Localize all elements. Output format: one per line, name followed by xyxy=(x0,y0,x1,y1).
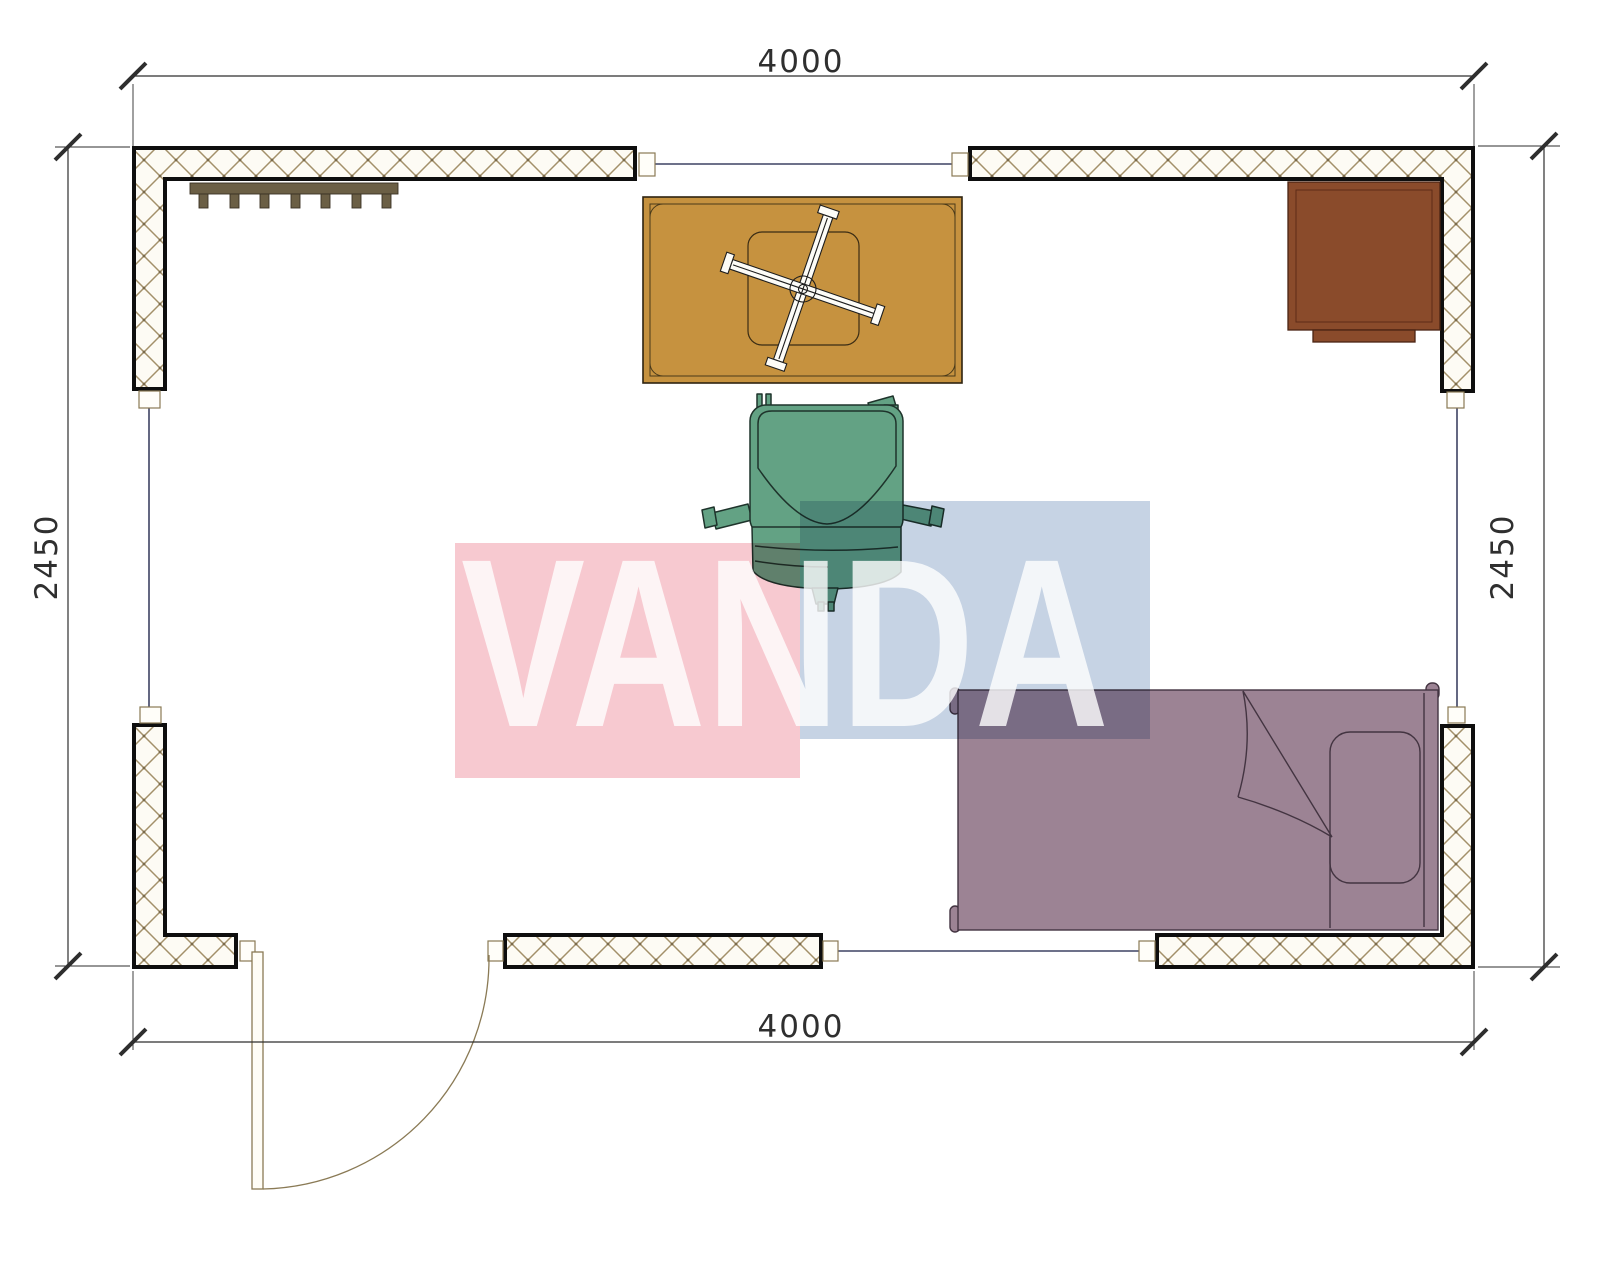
door xyxy=(252,952,489,1189)
desk-foot xyxy=(1313,330,1415,342)
coat-rack-hook xyxy=(382,194,391,208)
wall-connector xyxy=(1139,941,1155,961)
wall-bottom-left xyxy=(132,723,238,969)
wall-connector xyxy=(1447,392,1464,408)
wall-bottom-middle xyxy=(503,933,823,969)
dimension-right: 2450 xyxy=(1478,133,1560,980)
wall-connector xyxy=(140,707,161,723)
dimension-label-top: 4000 xyxy=(758,44,845,80)
door-swing-arc xyxy=(263,955,489,1189)
bed-pillow xyxy=(1330,732,1420,883)
wall-connector xyxy=(823,941,838,961)
wall-connector xyxy=(952,153,968,176)
coat-rack-hook xyxy=(199,194,208,208)
dimension-label-bottom: 4000 xyxy=(758,1009,845,1045)
desk-top xyxy=(1288,182,1440,330)
dimension-label-right: 2450 xyxy=(1485,514,1521,601)
dimension-left: 2450 xyxy=(29,134,130,979)
coat-rack-hook xyxy=(291,194,300,208)
dimension-top: 4000 xyxy=(120,44,1487,146)
wall-connector xyxy=(488,941,503,961)
table xyxy=(643,181,962,395)
coat-rack-hook xyxy=(352,194,361,208)
wall-connector xyxy=(1448,707,1465,723)
watermark-text: VANDA xyxy=(461,509,1109,777)
door-leaf xyxy=(252,952,263,1189)
floor-plan-canvas: 4000 4000 2450 2450 VANDA xyxy=(0,0,1600,1280)
wall-bottom-left-hatch xyxy=(136,727,234,965)
watermark: VANDA xyxy=(455,501,1150,778)
dimension-label-left: 2450 xyxy=(29,514,65,601)
coat-rack-hook xyxy=(230,194,239,208)
coat-rack-hook xyxy=(260,194,269,208)
wall-connector xyxy=(639,153,655,176)
extension-line xyxy=(133,84,1474,146)
coat-rack xyxy=(190,183,398,208)
dimension-bottom: 4000 xyxy=(120,971,1487,1055)
extension-line xyxy=(55,147,130,966)
desk xyxy=(1288,182,1440,342)
wall-connector xyxy=(139,391,160,408)
coat-rack-hook xyxy=(321,194,330,208)
wall-bottom-middle-hatch xyxy=(507,937,819,965)
coat-rack-bar xyxy=(190,183,398,194)
